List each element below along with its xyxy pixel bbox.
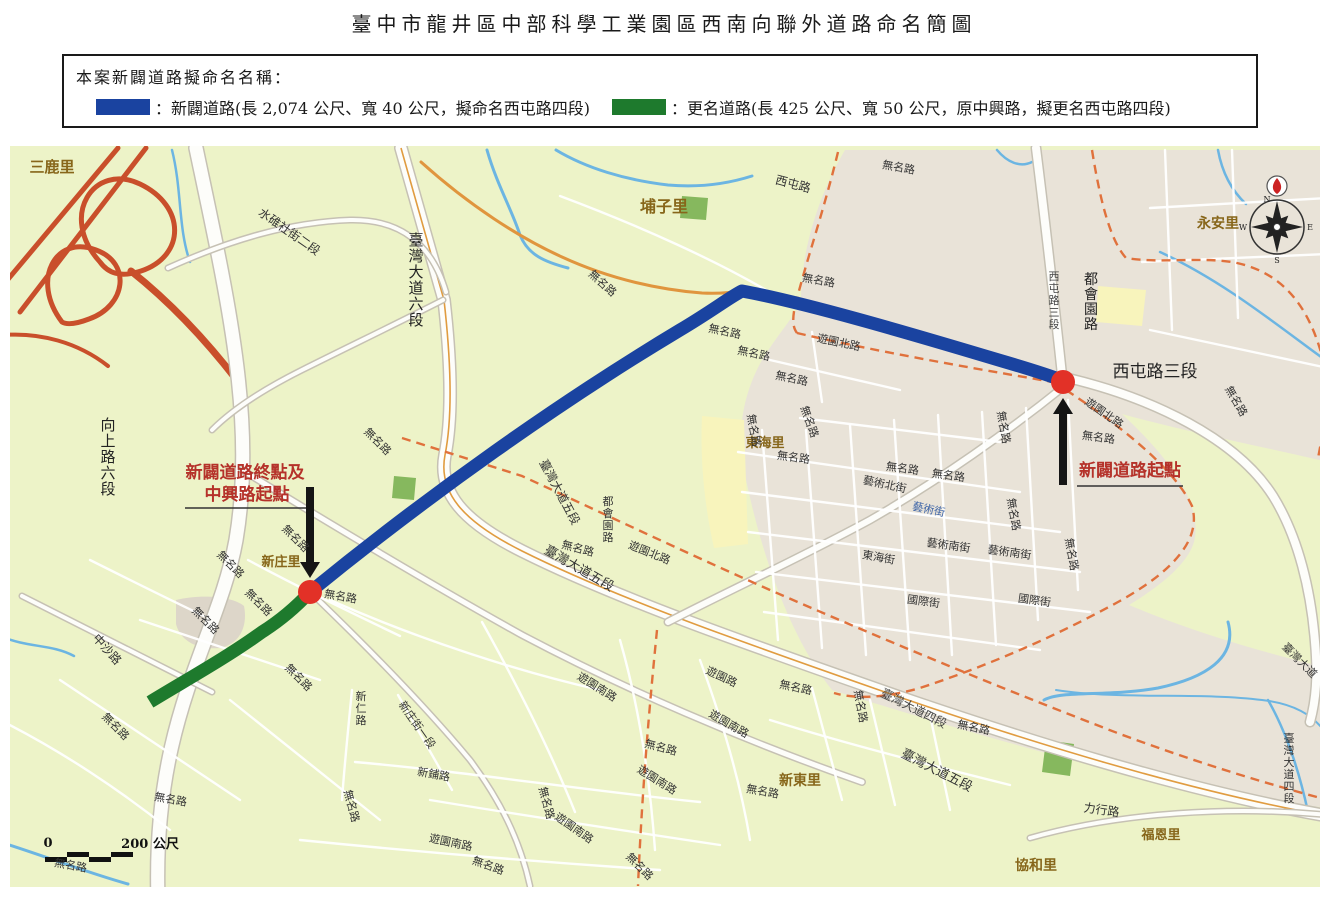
compass-letter: S — [1274, 256, 1279, 265]
new-road-swatch — [96, 99, 150, 115]
road-start-dot — [1051, 370, 1075, 394]
village-label: 協和里 — [1015, 857, 1057, 874]
map-label: 向上路六段 — [100, 416, 115, 498]
map-label: 都會園路 — [603, 495, 614, 544]
village-label: 福恩里 — [1140, 827, 1180, 843]
scale-bar — [67, 852, 89, 857]
village-label: 新庄里 — [261, 554, 300, 570]
map-label: 臺灣大道六段 — [408, 231, 423, 329]
renamed-road-legend-label: ：更名道路(長 425 公尺、寬 50 公尺，原中興路，擬更名西屯路四段) — [671, 95, 1171, 119]
map-label: 西屯路三段 — [1113, 362, 1198, 382]
compass-hub — [1274, 224, 1281, 231]
legend-box: 本案新闢道路擬命名名稱： ：新闢道路(長 2,074 公尺、寬 40 公尺，擬命… — [62, 54, 1258, 128]
new-road-legend-label: ：新闢道路(長 2,074 公尺、寬 40 公尺，擬命名西屯路四段) — [155, 95, 590, 119]
scale-bar — [89, 857, 111, 862]
map-canvas: 0200 公尺NESW新闢道路終點及中興路起點新闢道路起點三鹿里埔子里永安里新庄… — [0, 0, 1328, 899]
green-patch — [392, 476, 416, 500]
village-label: 永安里 — [1196, 215, 1239, 232]
road-end-dot — [298, 580, 322, 604]
scale-bar — [111, 852, 133, 857]
map-layers: 0200 公尺NESW新闢道路終點及中興路起點新闢道路起點三鹿里埔子里永安里新庄… — [0, 146, 1328, 899]
village-label: 三鹿里 — [29, 158, 74, 176]
map-label: 都會園路 — [1084, 272, 1098, 333]
map-label: 臺灣大道四段 — [1284, 731, 1295, 805]
end-annotation-line2: 中興路起點 — [205, 484, 290, 505]
pale-field — [1096, 286, 1146, 326]
renamed-road-swatch — [612, 99, 666, 115]
village-label: 埔子里 — [640, 197, 688, 216]
end-annotation-line1: 新闢道路終點及 — [186, 462, 306, 483]
compass-letter: N — [1264, 195, 1271, 204]
compass-letter: W — [1239, 223, 1248, 232]
start-annotation: 新闢道路起點 — [1079, 460, 1181, 481]
map-label: 新仁路 — [356, 689, 367, 727]
scale-label: 0 — [43, 836, 52, 851]
compass-letter: E — [1307, 223, 1313, 232]
legend-heading: 本案新闢道路擬命名名稱： — [76, 64, 1256, 88]
legend-row: ：新闢道路(長 2,074 公尺、寬 40 公尺，擬命名西屯路四段) ：更名道路… — [96, 95, 1256, 119]
scale-label: 200 公尺 — [121, 837, 179, 852]
map-label: 西屯路三段 — [1049, 270, 1060, 331]
village-label: 新東里 — [779, 772, 821, 789]
